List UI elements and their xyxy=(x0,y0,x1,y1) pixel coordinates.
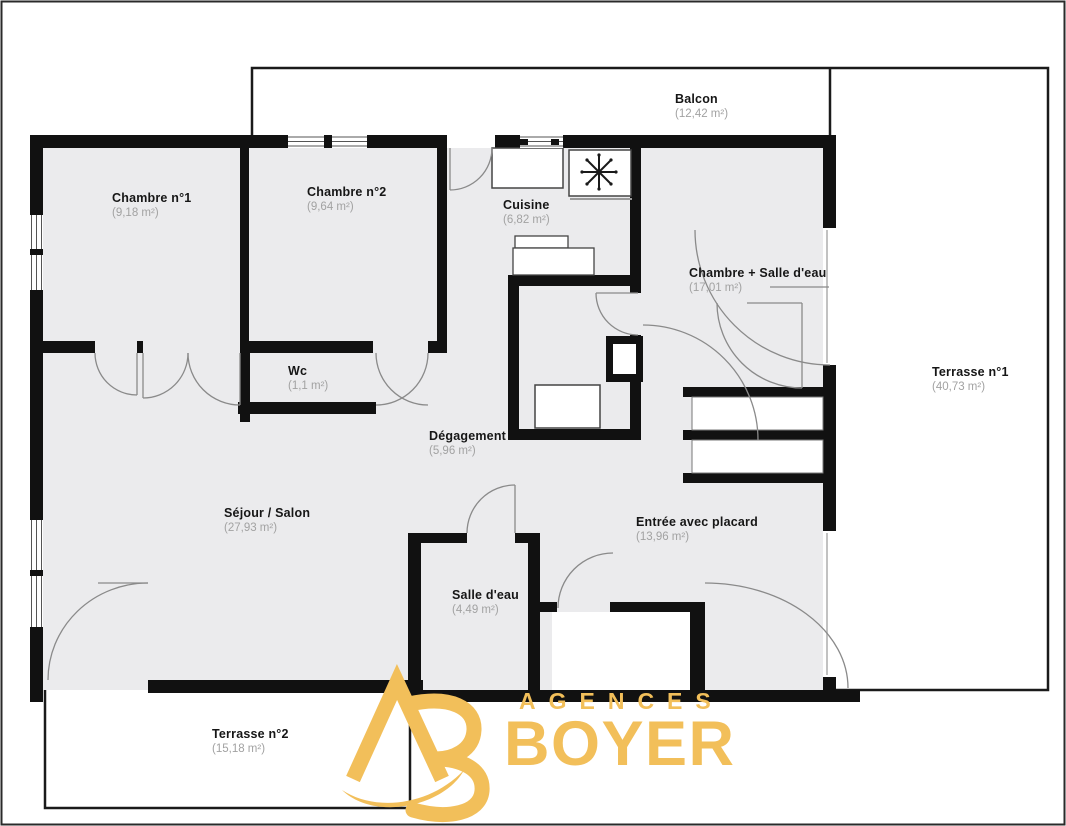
room-label-chambre_salle_eau: Chambre + Salle d'eau(17,01 m²) xyxy=(689,266,826,296)
room-area: (1,1 m²) xyxy=(288,380,328,393)
room-area: (9,64 m²) xyxy=(307,201,386,214)
window-chambre2 xyxy=(288,135,367,148)
kitchen-unit-small xyxy=(515,236,568,248)
cooktop-icon xyxy=(580,153,617,190)
room-name: Entrée avec placard xyxy=(636,515,758,529)
room-label-terrasse1: Terrasse n°1(40,73 m²) xyxy=(932,365,1009,395)
window-sejour xyxy=(30,520,43,627)
floor-plan-page: Balcon(12,42 m²)Chambre n°1(9,18 m²)Cham… xyxy=(0,0,1066,826)
room-name: Balcon xyxy=(675,92,728,106)
closet-shelf-bottom xyxy=(692,440,823,473)
room-label-sejour: Séjour / Salon(27,93 m²) xyxy=(224,506,310,536)
room-area: (5,96 m²) xyxy=(429,445,506,458)
room-name: Wc xyxy=(288,364,328,378)
room-name: Dégagement xyxy=(429,429,506,443)
room-name: Terrasse n°2 xyxy=(212,727,289,741)
room-area: (6,82 m²) xyxy=(503,214,550,227)
room-name: Chambre n°2 xyxy=(307,185,386,199)
room-area: (15,18 m²) xyxy=(212,743,289,756)
kitchen-unit-large xyxy=(513,248,594,275)
agency-logo-monogram xyxy=(342,682,482,814)
room-area: (40,73 m²) xyxy=(932,381,1009,394)
room-area: (9,18 m²) xyxy=(112,207,191,220)
room-area: (17,01 m²) xyxy=(689,282,826,295)
room-label-degagement: Dégagement(5,96 m²) xyxy=(429,429,506,459)
room-label-chambre2: Chambre n°2(9,64 m²) xyxy=(307,185,386,215)
room-area: (4,49 m²) xyxy=(452,604,519,617)
room-label-cuisine: Cuisine(6,82 m²) xyxy=(503,198,550,228)
logo-text-boyer: BOYER xyxy=(504,710,736,779)
room-label-wc: Wc(1,1 m²) xyxy=(288,364,328,394)
room-label-salle_eau: Salle d'eau(4,49 m²) xyxy=(452,588,519,618)
window-cuisine xyxy=(520,135,563,148)
room-label-entree: Entrée avec placard(13,96 m²) xyxy=(636,515,758,545)
room-label-chambre1: Chambre n°1(9,18 m²) xyxy=(112,191,191,221)
room-name: Chambre n°1 xyxy=(112,191,191,205)
room-name: Salle d'eau xyxy=(452,588,519,602)
room-name: Terrasse n°1 xyxy=(932,365,1009,379)
room-name: Chambre + Salle d'eau xyxy=(689,266,826,280)
room-area: (13,96 m²) xyxy=(636,531,758,544)
entrance-storage-interior xyxy=(552,612,690,690)
room-area: (27,93 m²) xyxy=(224,522,310,535)
window-chambre1 xyxy=(30,215,43,290)
room-label-balcon: Balcon(12,42 m²) xyxy=(675,92,728,122)
duct-niche xyxy=(613,344,636,374)
room-label-terrasse2: Terrasse n°2(15,18 m²) xyxy=(212,727,289,757)
kitchen-counter xyxy=(492,148,563,188)
room-name: Cuisine xyxy=(503,198,550,212)
room-area: (12,42 m²) xyxy=(675,108,728,121)
shower-tray xyxy=(535,385,600,428)
room-name: Séjour / Salon xyxy=(224,506,310,520)
